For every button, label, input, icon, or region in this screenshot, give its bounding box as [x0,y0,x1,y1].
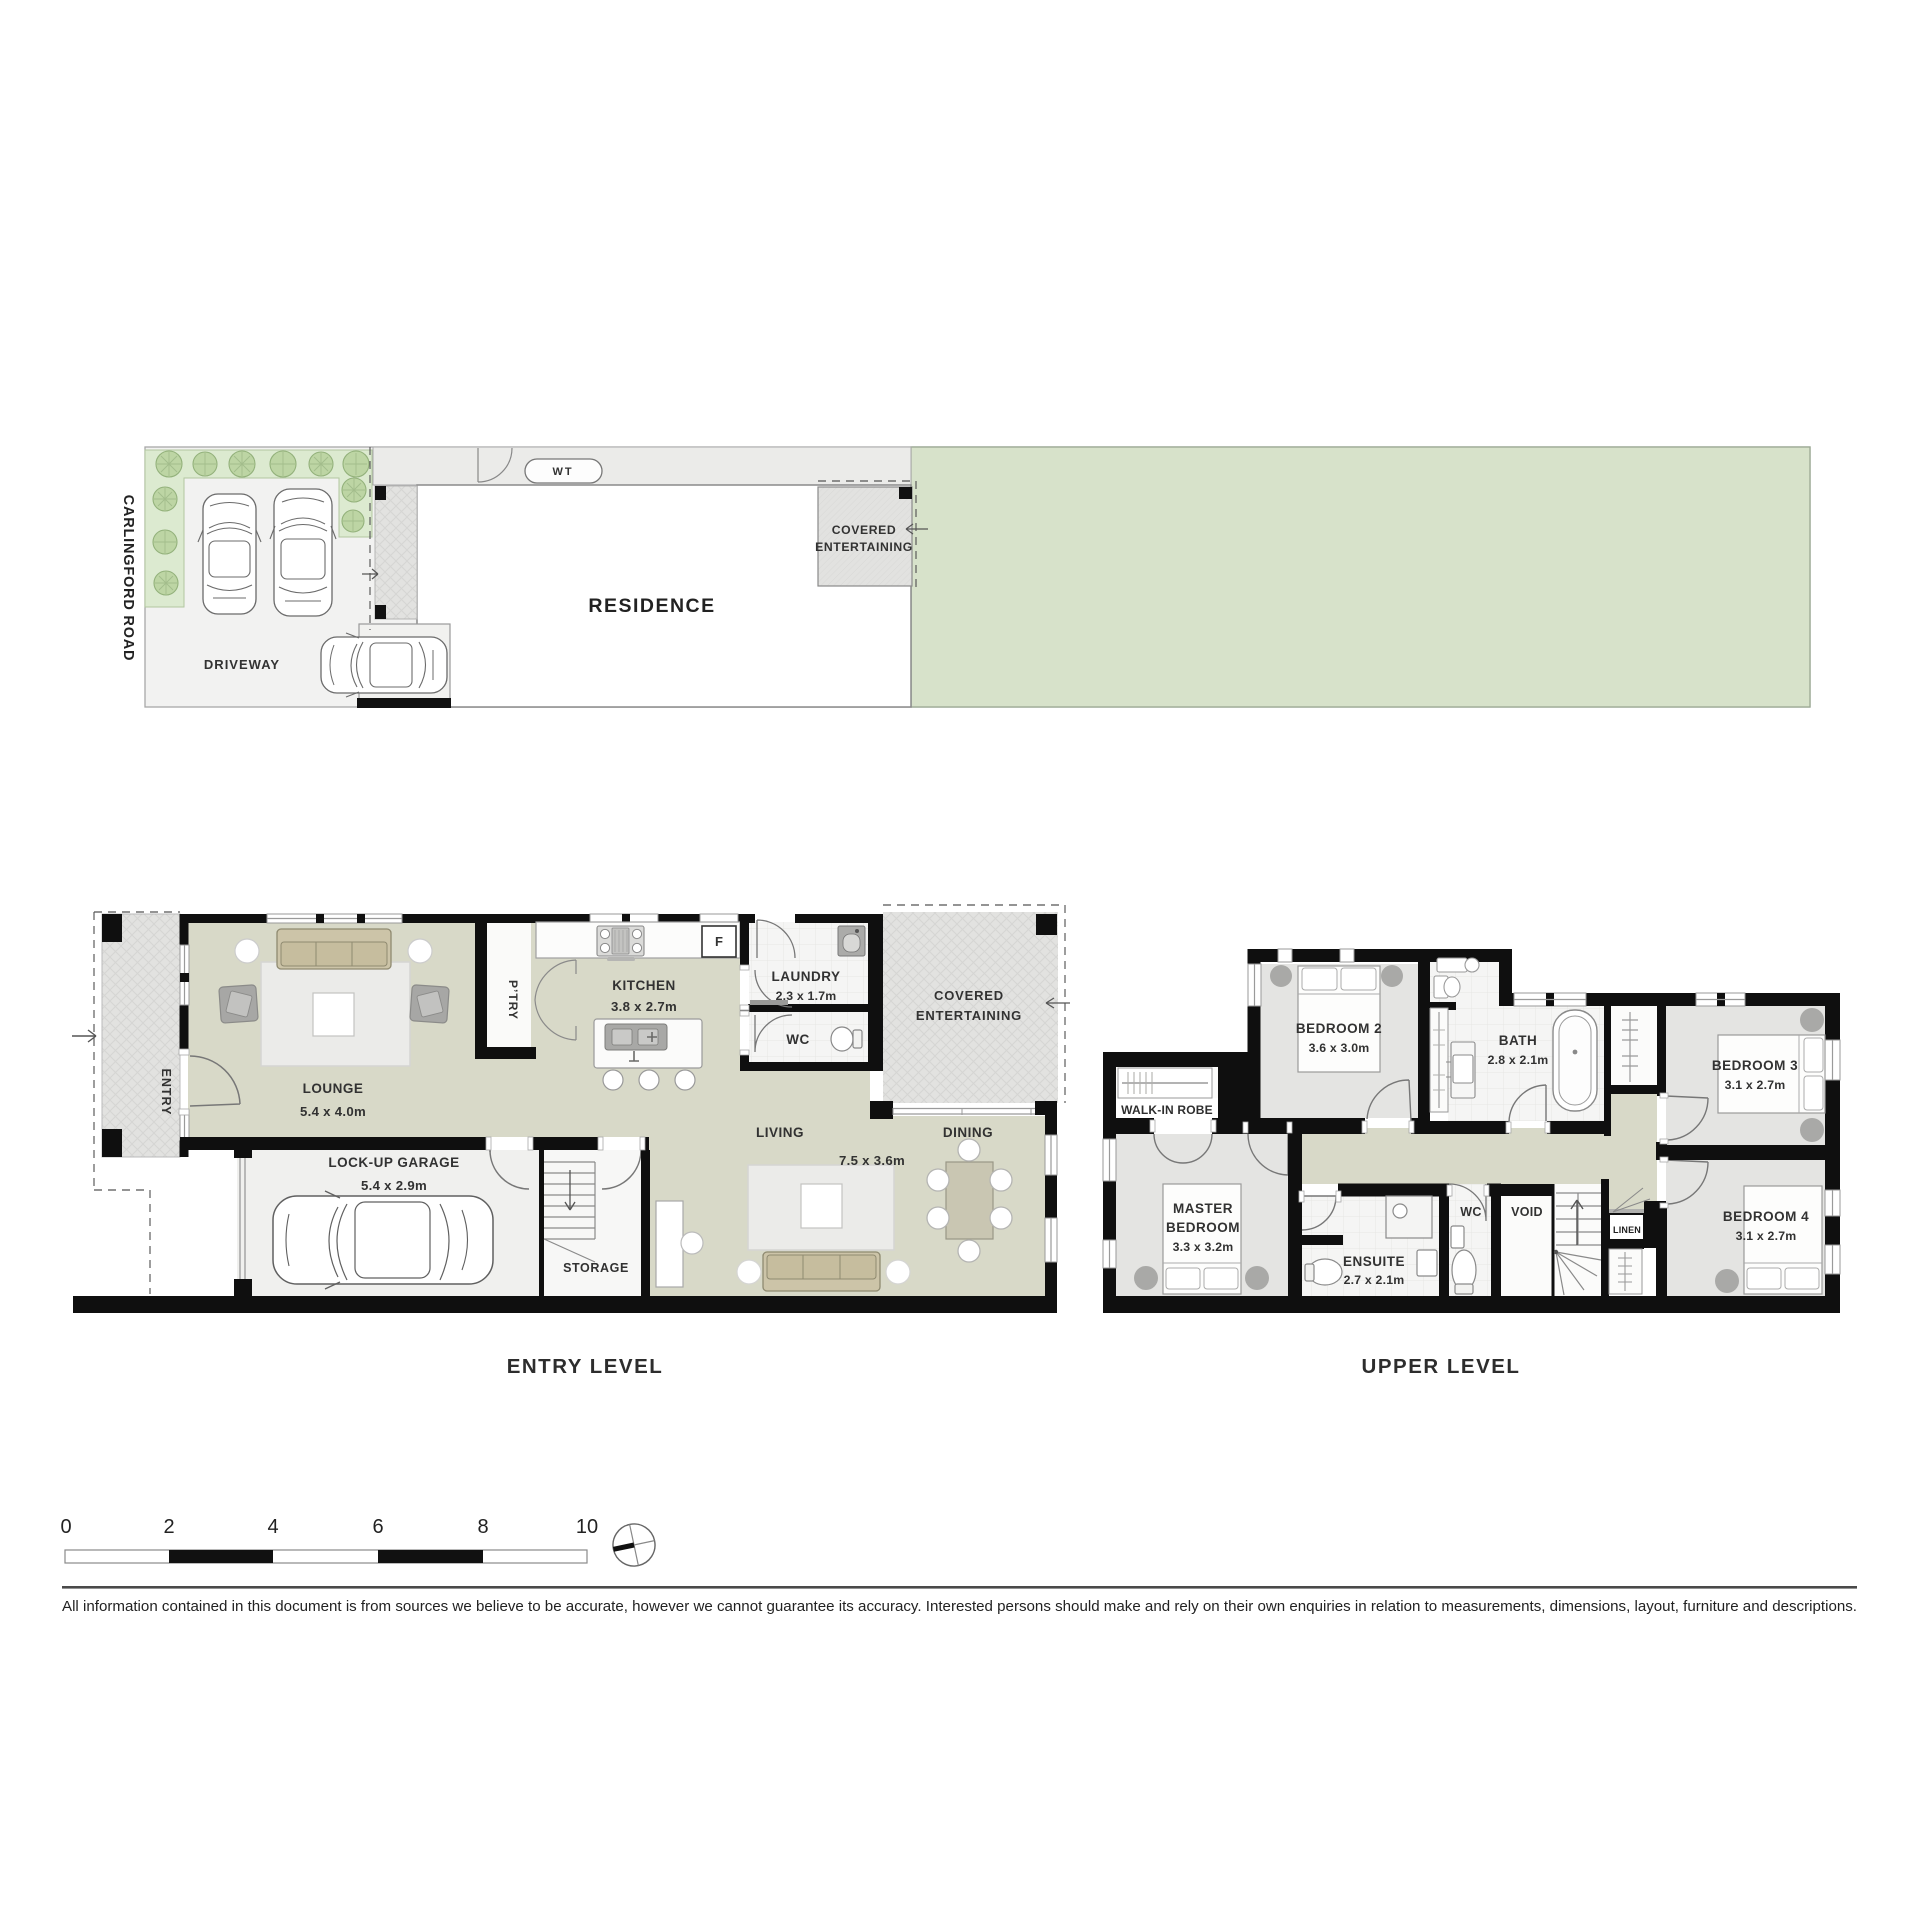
svg-text:COVERED: COVERED [832,523,896,537]
svg-text:WALK-IN ROBE: WALK-IN ROBE [1121,1103,1213,1117]
svg-text:DINING: DINING [943,1125,993,1140]
svg-text:10: 10 [576,1516,598,1538]
svg-text:LAUNDRY: LAUNDRY [772,969,841,984]
svg-text:LOUNGE: LOUNGE [303,1081,364,1096]
svg-text:F: F [715,934,723,949]
svg-text:LIVING: LIVING [756,1125,804,1140]
svg-text:BEDROOM 3: BEDROOM 3 [1712,1058,1798,1073]
svg-text:UPPER LEVEL: UPPER LEVEL [1362,1355,1521,1378]
svg-text:3.1 x 2.7m: 3.1 x 2.7m [1725,1078,1786,1092]
svg-text:All information contained in t: All information contained in this docume… [62,1599,1857,1615]
svg-text:2.3 x 1.7m: 2.3 x 1.7m [776,989,837,1003]
svg-text:WC: WC [1460,1205,1481,1219]
svg-text:WC: WC [786,1032,810,1047]
svg-text:ENSUITE: ENSUITE [1343,1254,1405,1269]
svg-text:P’TRY: P’TRY [506,980,520,1020]
svg-text:BEDROOM: BEDROOM [1166,1220,1240,1235]
svg-text:3.3 x 3.2m: 3.3 x 3.2m [1173,1240,1234,1254]
svg-text:BEDROOM 2: BEDROOM 2 [1296,1021,1382,1036]
svg-text:STORAGE: STORAGE [563,1261,629,1275]
svg-text:WT: WT [552,466,573,478]
svg-text:RESIDENCE: RESIDENCE [588,595,715,617]
svg-text:5.4 x 4.0m: 5.4 x 4.0m [300,1104,366,1119]
svg-text:2.8 x 2.1m: 2.8 x 2.1m [1488,1053,1549,1067]
svg-text:BATH: BATH [1499,1033,1538,1048]
svg-text:LINEN: LINEN [1613,1225,1641,1235]
svg-text:DRIVEWAY: DRIVEWAY [204,657,280,672]
svg-text:6: 6 [372,1516,383,1538]
svg-text:3.6 x 3.0m: 3.6 x 3.0m [1309,1041,1370,1055]
svg-text:0: 0 [60,1516,71,1538]
svg-text:5.4 x 2.9m: 5.4 x 2.9m [361,1178,427,1193]
svg-text:7.5 x 3.6m: 7.5 x 3.6m [839,1153,905,1168]
svg-text:4: 4 [267,1516,278,1538]
svg-text:LOCK-UP GARAGE: LOCK-UP GARAGE [328,1155,459,1170]
svg-text:ENTERTAINING: ENTERTAINING [916,1008,1022,1023]
svg-text:2.7 x 2.1m: 2.7 x 2.1m [1344,1273,1405,1287]
svg-text:3.1 x 2.7m: 3.1 x 2.7m [1736,1229,1797,1243]
svg-text:COVERED: COVERED [934,988,1004,1003]
svg-text:2: 2 [163,1516,174,1538]
svg-text:CARLINGFORD ROAD: CARLINGFORD ROAD [120,495,136,662]
svg-text:VOID: VOID [1511,1205,1543,1219]
svg-text:KITCHEN: KITCHEN [612,978,676,993]
svg-text:8: 8 [477,1516,488,1538]
svg-text:ENTERTAINING: ENTERTAINING [815,540,913,554]
svg-text:ENTRY LEVEL: ENTRY LEVEL [507,1355,664,1378]
svg-text:MASTER: MASTER [1173,1201,1233,1216]
svg-text:ENTRY: ENTRY [159,1069,173,1116]
svg-text:3.8 x 2.7m: 3.8 x 2.7m [611,999,677,1014]
svg-text:BEDROOM 4: BEDROOM 4 [1723,1209,1809,1224]
